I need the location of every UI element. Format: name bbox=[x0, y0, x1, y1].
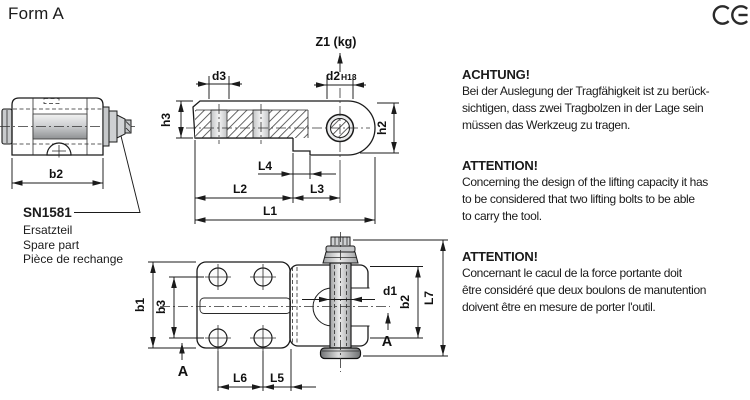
page-title: Form A bbox=[8, 4, 64, 24]
notice-fr-line: Concernant le cacul de la force portante… bbox=[462, 265, 750, 282]
dim-label-h2: h2 bbox=[375, 121, 389, 135]
dim-label-l4: L4 bbox=[258, 159, 272, 173]
notice-de: ACHTUNG! Bei der Auslegung der Tragfähig… bbox=[462, 67, 750, 134]
dim-label-l7: L7 bbox=[422, 291, 436, 305]
notice-de-line: Bei der Auslegung der Tragfähigkeit ist … bbox=[462, 83, 750, 100]
dim-label-d1: d1 bbox=[383, 284, 397, 298]
dim-label-b1: b1 bbox=[133, 298, 147, 312]
dim-label-l3: L3 bbox=[310, 182, 324, 196]
section-view: d3 d2 H13 Z1 (kg) h3 h2 L4 L2 L3 L1 bbox=[159, 35, 399, 224]
spare-part-view: b2 bbox=[0, 98, 140, 213]
notice-en-line: Concerning the design of the lifting cap… bbox=[462, 174, 750, 191]
dim-label-l2: L2 bbox=[233, 182, 247, 196]
dim-label-b3: b3 bbox=[154, 300, 168, 314]
catalog-page: d3 d2 H13 Z1 (kg) h3 h2 L4 L2 L3 L1 bbox=[0, 0, 750, 400]
notice-fr-line: doivent être en mesure de porter l'outil… bbox=[462, 299, 750, 316]
dim-label-d3: d3 bbox=[212, 69, 226, 83]
warning-notices: ACHTUNG! Bei der Auslegung der Tragfähig… bbox=[462, 67, 750, 316]
spare-part-label-de: Ersatzteil bbox=[23, 223, 123, 238]
dim-label-d2: d2 bbox=[326, 69, 340, 83]
notice-en-heading: ATTENTION! bbox=[462, 158, 750, 174]
section-label-a-right: A bbox=[382, 334, 393, 350]
notice-de-line: sichtigen, dass zwei Tragbolzen in der L… bbox=[462, 100, 750, 117]
dim-label-b2-spare: b2 bbox=[49, 167, 63, 181]
spare-part-label-fr: Pièce de rechange bbox=[23, 252, 123, 267]
top-view: b1 b3 b2 L7 d1 L6 L5 A A bbox=[133, 232, 448, 391]
notice-de-line: müssen das Werkzeug zu tragen. bbox=[462, 117, 750, 134]
spare-part-leader-line bbox=[74, 136, 140, 213]
dim-label-b2: b2 bbox=[398, 295, 412, 309]
notice-fr: ATTENTION! Concernant le cacul de la for… bbox=[462, 249, 750, 316]
load-label-z1: Z1 (kg) bbox=[316, 35, 357, 49]
notice-en: ATTENTION! Concerning the design of the … bbox=[462, 158, 750, 225]
dim-label-l6: L6 bbox=[233, 371, 247, 385]
notice-en-line: to be considered that two lifting bolts … bbox=[462, 191, 750, 208]
spare-nut-stack bbox=[103, 107, 131, 146]
notice-en-line: to carry the tool. bbox=[462, 208, 750, 225]
spare-part-code: SN1581 bbox=[23, 205, 123, 220]
dim-label-h3: h3 bbox=[159, 113, 173, 127]
section-label-a-left: A bbox=[178, 364, 189, 380]
notice-de-heading: ACHTUNG! bbox=[462, 67, 750, 83]
spare-part-label-en: Spare part bbox=[23, 238, 123, 253]
spare-part-callout: SN1581 Ersatzteil Spare part Pièce de re… bbox=[23, 205, 123, 267]
dim-label-l1: L1 bbox=[263, 204, 277, 218]
dim-label-l5: L5 bbox=[270, 371, 284, 385]
dim-label-d2-tolerance: H13 bbox=[341, 72, 357, 82]
notice-fr-heading: ATTENTION! bbox=[462, 249, 750, 265]
notice-fr-line: être considéré que deux boulons de manut… bbox=[462, 282, 750, 299]
